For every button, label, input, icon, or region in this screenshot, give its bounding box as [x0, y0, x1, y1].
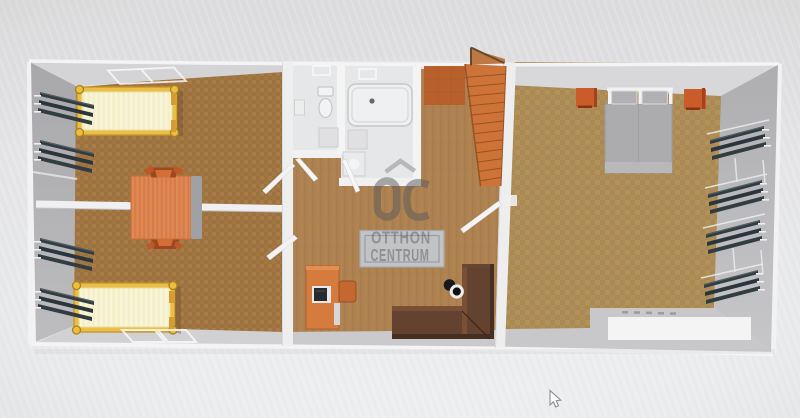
svg-text:OTTHON: OTTHON: [371, 229, 431, 248]
svg-text:CENTRUM: CENTRUM: [370, 246, 429, 265]
